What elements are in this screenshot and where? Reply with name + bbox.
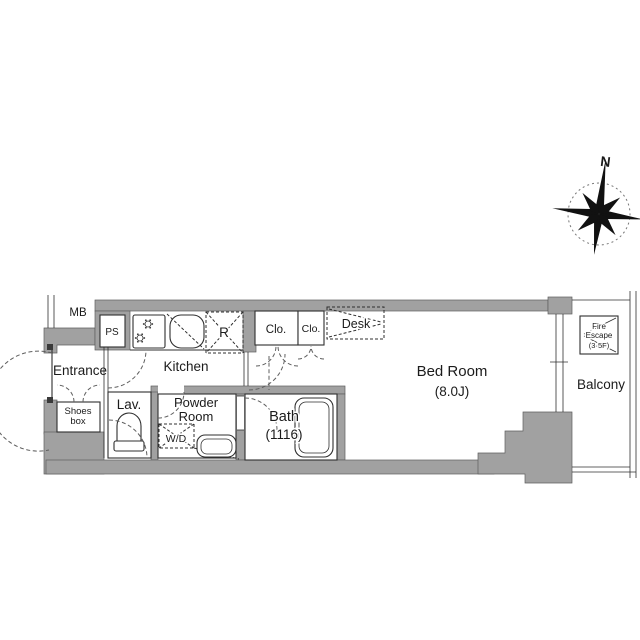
closet-bifold-arc-2: [278, 346, 298, 366]
wall-bath-right: [337, 394, 345, 460]
wall-lav-powder-divider: [151, 392, 158, 460]
fire-escape-label-line2: Escape: [586, 331, 613, 340]
closet-right-label: Clo.: [302, 323, 321, 335]
washer-dryer-label: W/D: [166, 433, 187, 445]
desk-label: Desk: [342, 317, 371, 331]
compass-north-label: N: [599, 153, 611, 170]
closet-left-label: Clo.: [266, 324, 286, 336]
wall-top: [95, 300, 548, 311]
powder-room-label-line2: Room: [179, 409, 214, 424]
entrance-label: Entrance: [53, 363, 107, 378]
refrigerator-label: R: [219, 325, 229, 340]
powder-room-label-line1: Powder: [174, 395, 219, 410]
wall-stepped-corner: [478, 412, 572, 483]
closet-bifold-arc-1: [256, 346, 276, 366]
bed-room-label-line1: Bed Room: [417, 363, 488, 380]
compass-rose: N: [547, 148, 640, 260]
fire-escape-label-line1: Fire: [592, 322, 606, 331]
floor-plan-drawing: MB PS R Clo. Clo. Desk Kitchen Entrance …: [0, 0, 640, 640]
pipe-space-label: PS: [105, 327, 119, 338]
wall-top-right-block: [548, 297, 572, 314]
bath-label-line1: Bath: [269, 409, 299, 425]
passage-door-swing: [249, 354, 285, 390]
wall-left-column: [44, 400, 57, 434]
toilet-tank: [114, 441, 144, 451]
floor-plan-page: MB PS R Clo. Clo. Desk Kitchen Entrance …: [0, 0, 640, 640]
lavatory-label: Lav.: [117, 397, 142, 412]
wall-bottom-strip: [46, 460, 494, 474]
bed-room-label-line2: (8.0J): [435, 384, 470, 399]
meter-box-label: MB: [69, 307, 87, 319]
shoes-box-door-swing-right: [83, 385, 100, 402]
shoes-box-label-line2: box: [70, 416, 86, 427]
entrance-door-pivot-top: [47, 344, 53, 350]
kitchen-label: Kitchen: [163, 359, 208, 374]
closet-bifold-arc-4: [311, 346, 324, 359]
fire-escape-label-line3: (3·5F): [589, 341, 610, 350]
closet-bifold-arc-3: [298, 346, 311, 359]
entrance-door-pivot-bottom: [47, 397, 53, 403]
bath-label-line2: (1116): [265, 427, 302, 442]
stove: [133, 315, 165, 348]
wall-stub-closet: [243, 311, 256, 352]
bath-door-gap: [237, 396, 244, 430]
balcony-label: Balcony: [577, 377, 625, 392]
kitchen-door-swing: [108, 350, 146, 388]
kitchen-sink: [170, 315, 204, 348]
shoes-box-door-swing-left: [57, 385, 74, 402]
